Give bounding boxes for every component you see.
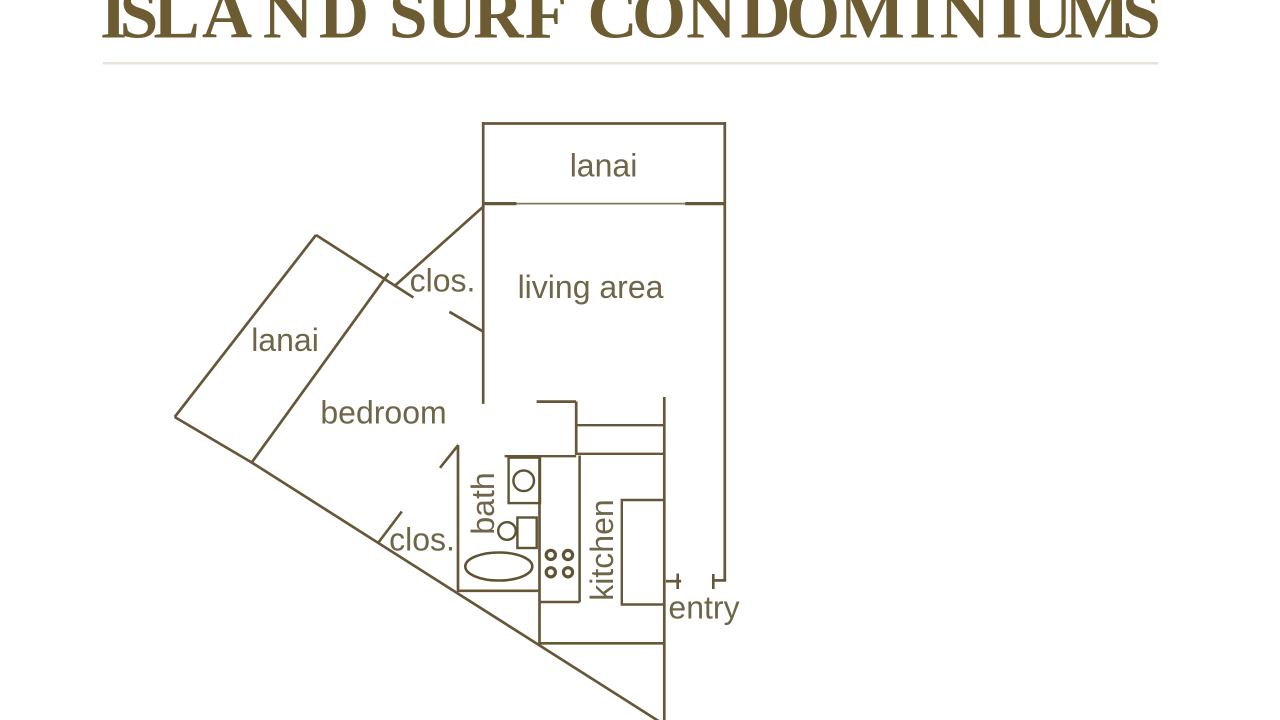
svg-text:bedroom: bedroom xyxy=(320,395,446,431)
svg-text:clos.: clos. xyxy=(389,522,455,558)
svg-text:lanai: lanai xyxy=(570,148,638,184)
svg-text:kitchen: kitchen xyxy=(584,499,620,600)
svg-text:entry: entry xyxy=(668,590,739,626)
svg-text:ISLANDSURFCONDOMINIUMS: ISLANDSURFCONDOMINIUMS xyxy=(100,0,1161,54)
svg-text:lanai: lanai xyxy=(251,322,319,358)
svg-text:clos.: clos. xyxy=(410,263,476,299)
svg-text:living area: living area xyxy=(518,269,664,305)
svg-text:bath: bath xyxy=(465,472,501,534)
